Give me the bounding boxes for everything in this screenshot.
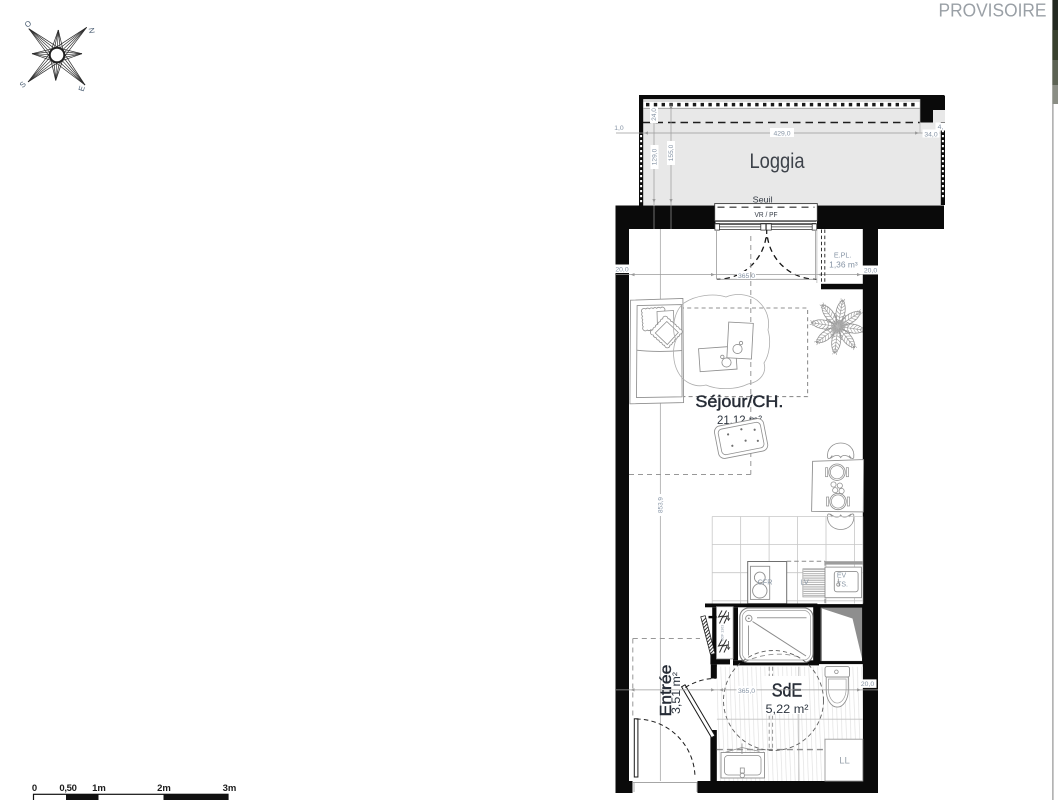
svg-text:N: N bbox=[87, 27, 97, 34]
svg-text:O: O bbox=[23, 19, 33, 30]
svg-text:LL: LL bbox=[839, 756, 850, 767]
svg-text:5,22 m²: 5,22 m² bbox=[766, 702, 809, 716]
svg-text:129,0: 129,0 bbox=[652, 148, 659, 165]
svg-text:CFR: CFR bbox=[758, 578, 773, 587]
svg-text:1,36 m³: 1,36 m³ bbox=[829, 260, 858, 269]
svg-text:853,9: 853,9 bbox=[657, 497, 664, 513]
svg-text:20,0: 20,0 bbox=[861, 681, 874, 688]
svg-text:1m: 1m bbox=[92, 783, 106, 794]
svg-text:34,0: 34,0 bbox=[924, 131, 937, 138]
svg-text:EV: EV bbox=[837, 573, 847, 580]
svg-text:155,0: 155,0 bbox=[668, 144, 675, 161]
svg-text:3,51 m²: 3,51 m² bbox=[671, 672, 683, 714]
svg-text:1,0: 1,0 bbox=[614, 125, 624, 132]
svg-text:365,0: 365,0 bbox=[738, 273, 755, 280]
svg-text:Loggia: Loggia bbox=[750, 150, 805, 173]
svg-text:0: 0 bbox=[32, 783, 37, 794]
svg-text:0,50: 0,50 bbox=[59, 783, 76, 794]
svg-text:LV: LV bbox=[800, 578, 808, 587]
svg-text:S: S bbox=[18, 80, 28, 90]
svg-text:GDF 1363: GDF 1363 bbox=[721, 625, 725, 642]
svg-text:365,0: 365,0 bbox=[738, 688, 755, 695]
svg-text:PROVISOIRE: PROVISOIRE bbox=[939, 0, 1047, 20]
svg-text:20,0: 20,0 bbox=[615, 266, 628, 273]
svg-text:429,0: 429,0 bbox=[773, 131, 790, 138]
svg-text:E.PL.: E.PL. bbox=[834, 251, 852, 260]
svg-text:20,0: 20,0 bbox=[864, 267, 877, 274]
svg-text:3m: 3m bbox=[223, 783, 237, 794]
svg-text:24,0: 24,0 bbox=[651, 108, 658, 121]
svg-text:VR / PF: VR / PF bbox=[755, 212, 778, 219]
svg-text:2m: 2m bbox=[157, 783, 171, 794]
svg-text:Séjour/CH.: Séjour/CH. bbox=[695, 393, 783, 411]
svg-text:4,: 4, bbox=[938, 124, 944, 131]
svg-text:E: E bbox=[77, 85, 87, 93]
svg-text:Seuil: Seuil bbox=[753, 196, 773, 205]
